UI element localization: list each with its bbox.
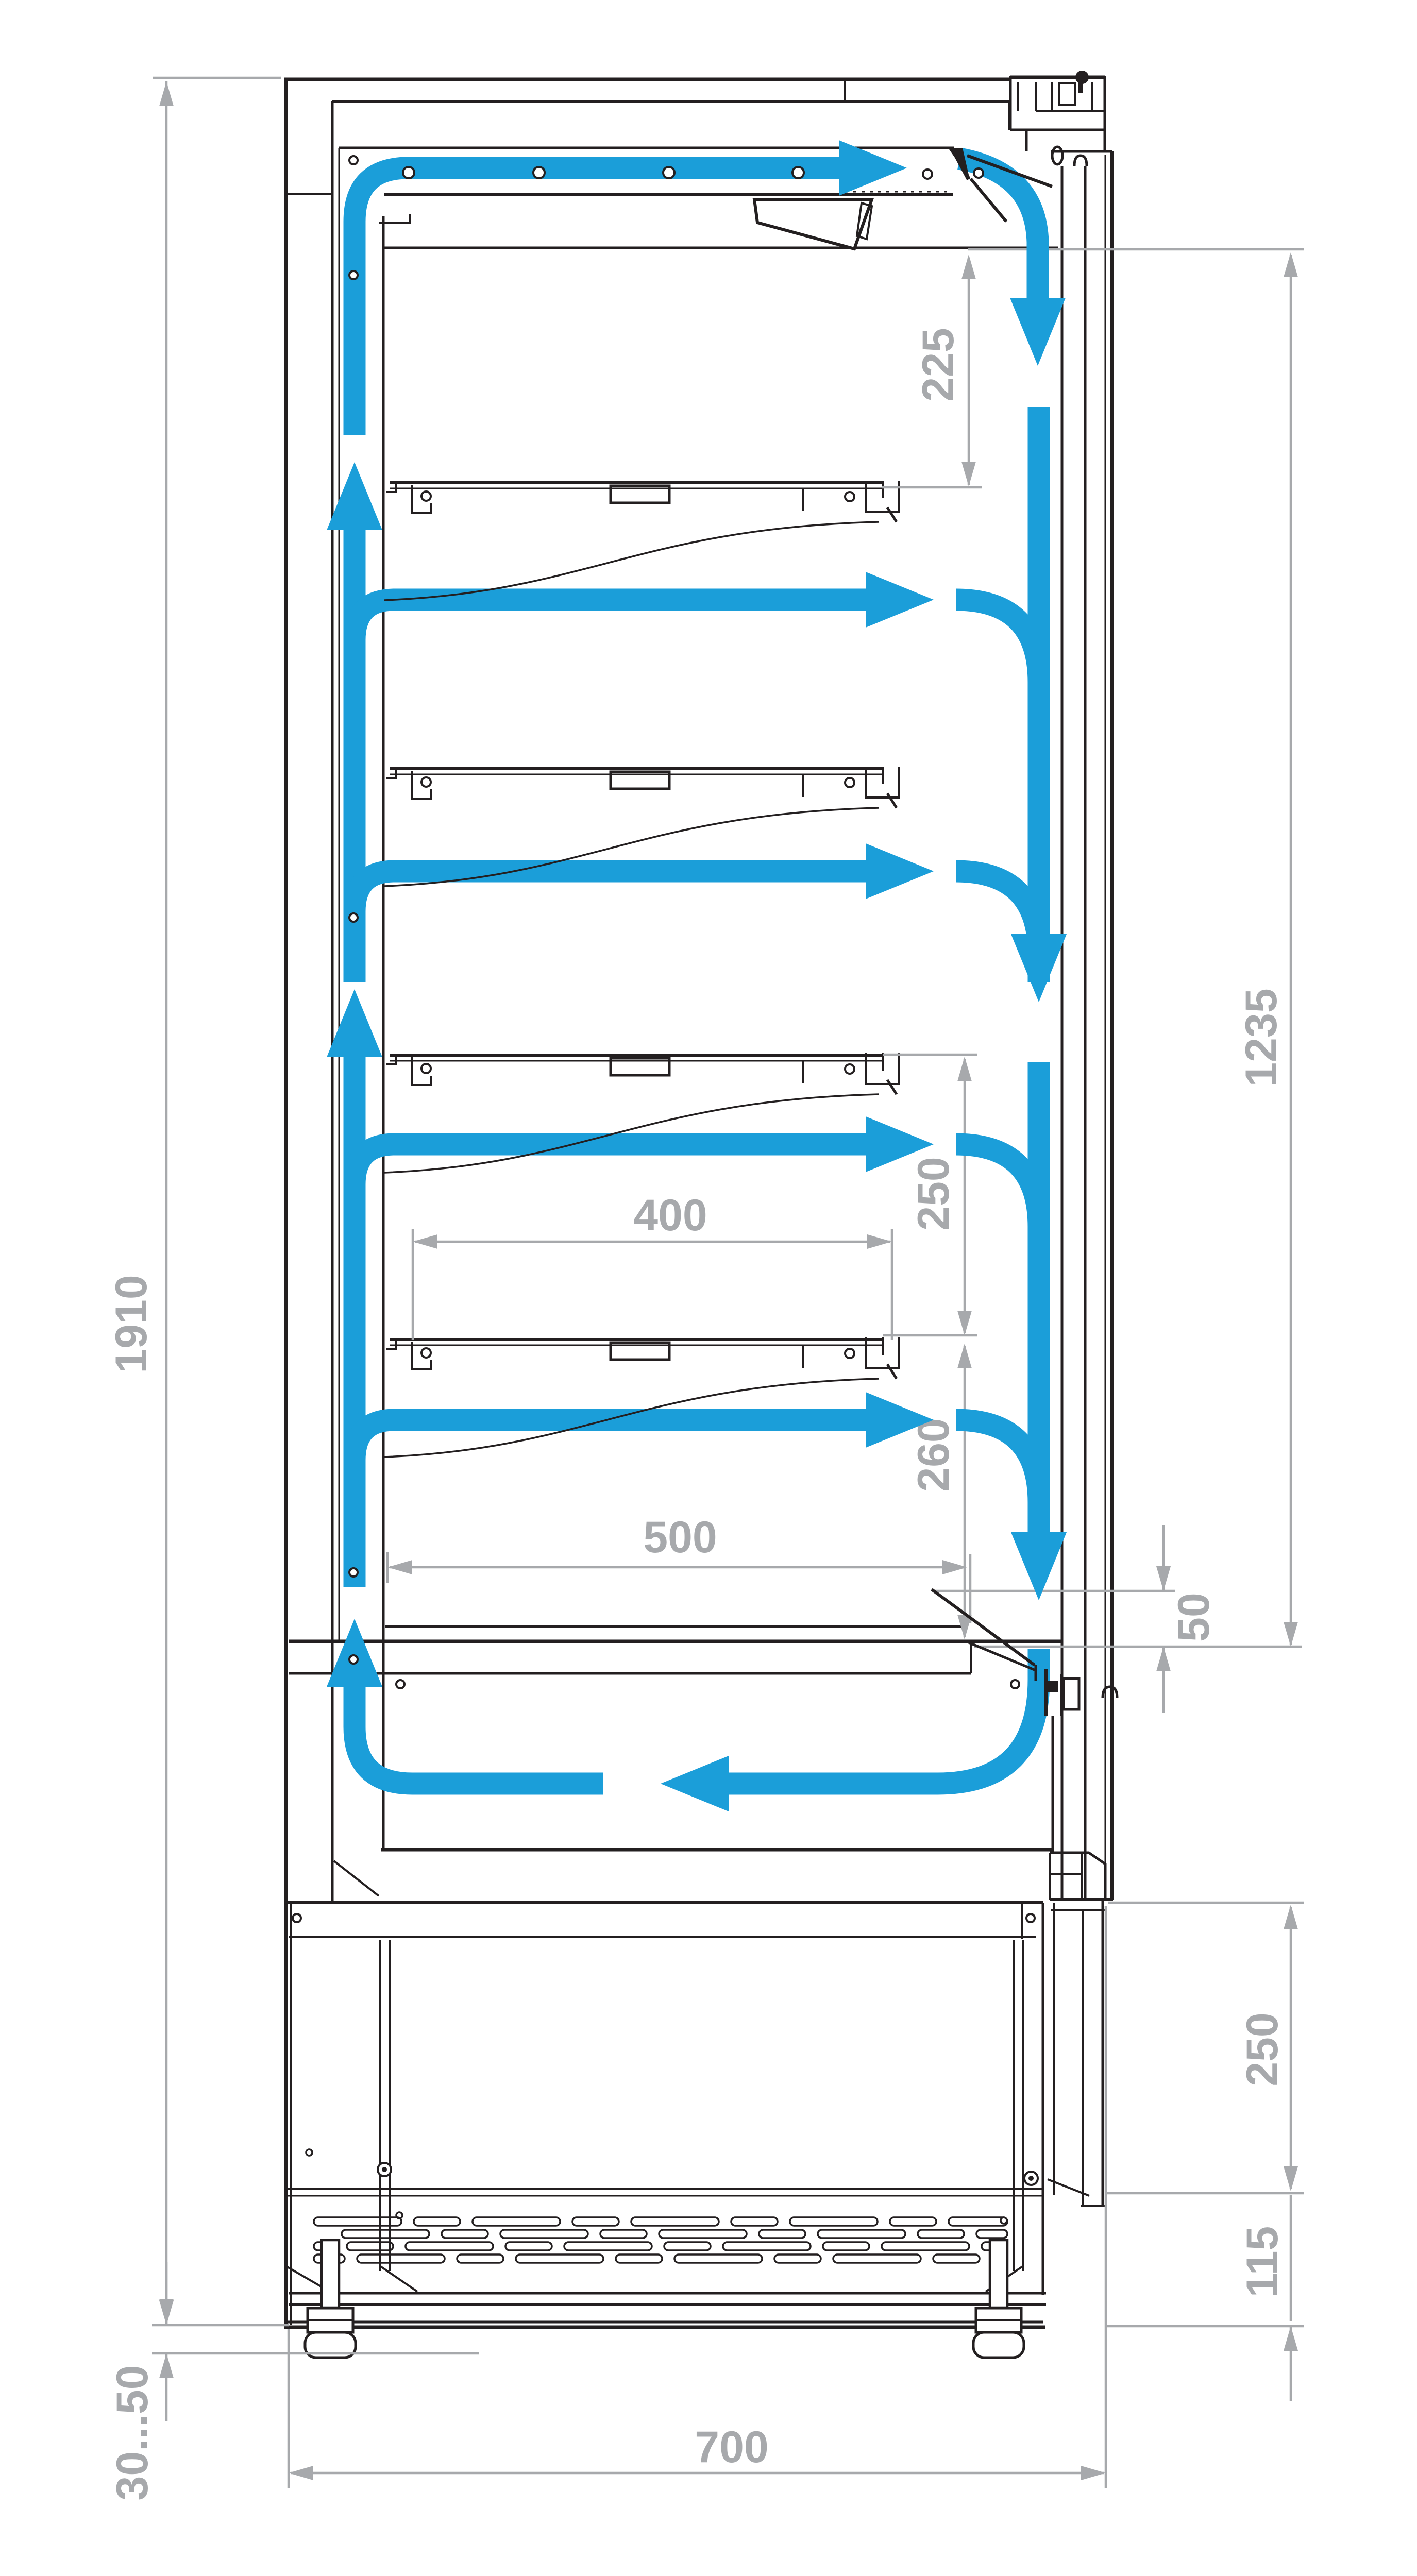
svg-text:400: 400 <box>633 1191 707 1240</box>
svg-text:1235: 1235 <box>1237 988 1286 1087</box>
svg-text:500: 500 <box>643 1513 717 1562</box>
svg-text:260: 260 <box>909 1418 958 1492</box>
svg-text:700: 700 <box>695 2422 769 2472</box>
svg-text:30...50: 30...50 <box>108 2365 157 2501</box>
svg-text:1910: 1910 <box>107 1275 156 1373</box>
svg-text:50: 50 <box>1169 1592 1219 1642</box>
svg-text:250: 250 <box>909 1157 958 1231</box>
svg-text:225: 225 <box>914 328 963 402</box>
svg-text:250: 250 <box>1238 2012 1287 2087</box>
svg-text:115: 115 <box>1238 2226 1287 2298</box>
